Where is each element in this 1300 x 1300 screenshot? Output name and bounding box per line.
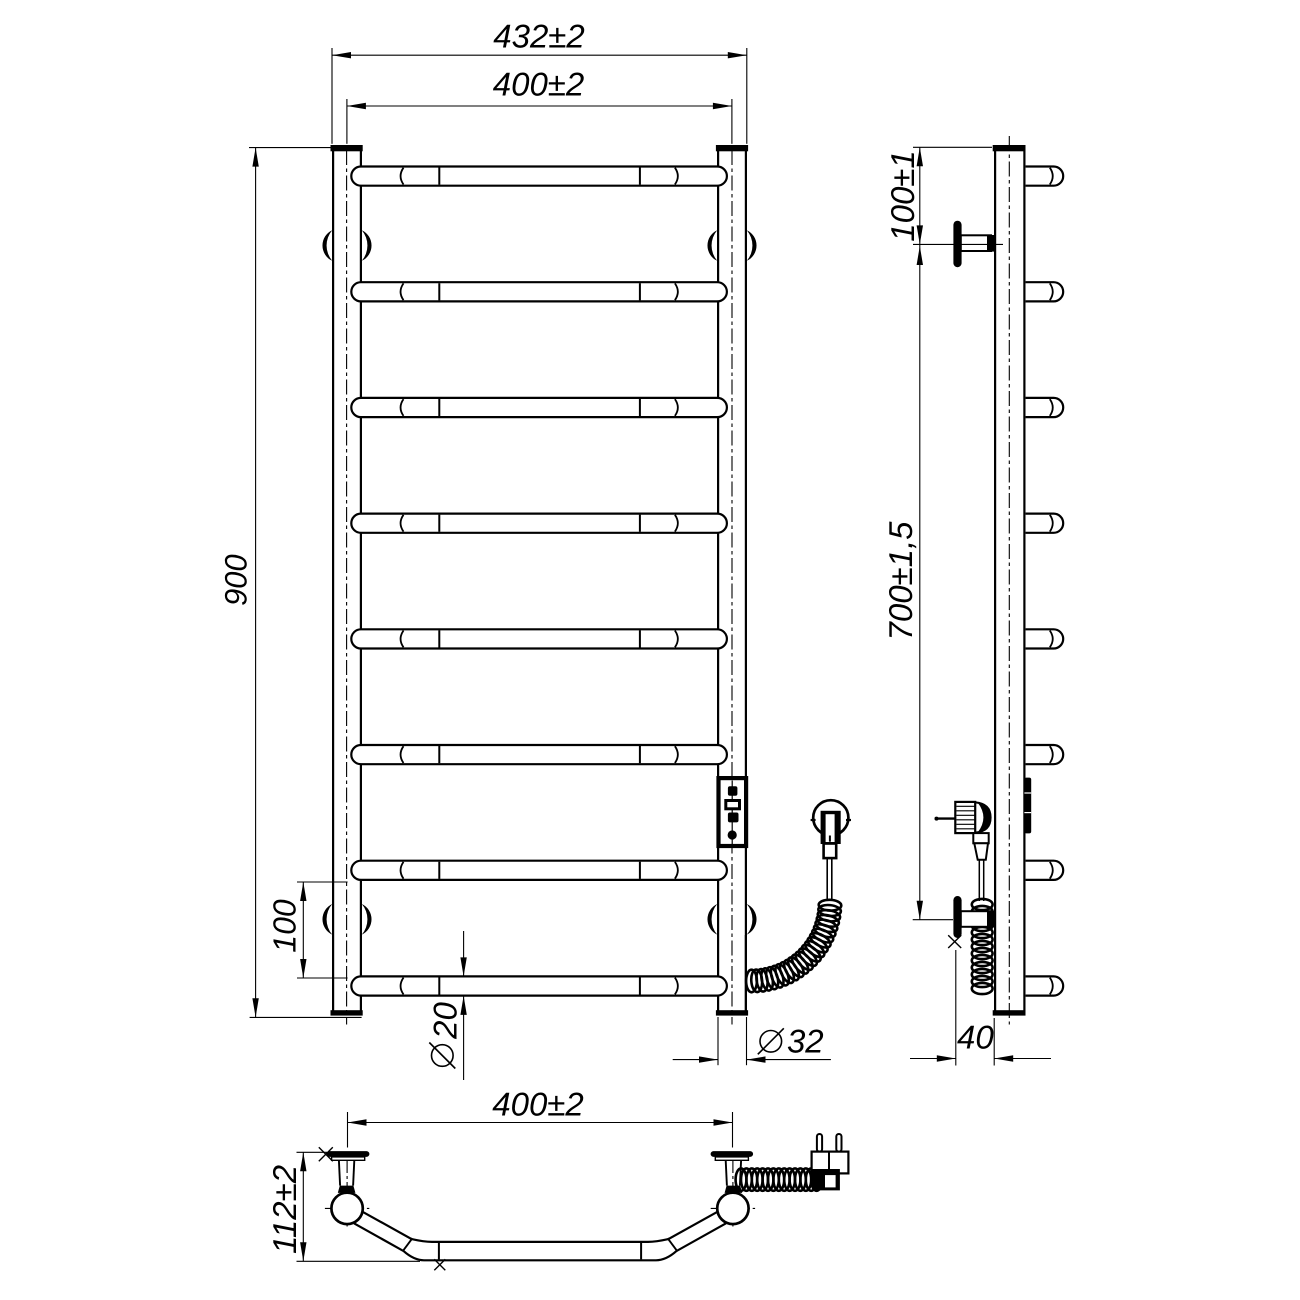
svg-text:112±2: 112±2: [266, 1165, 303, 1254]
svg-text:900: 900: [219, 554, 254, 606]
svg-text:432±2: 432±2: [493, 18, 585, 55]
svg-text:700±1,5: 700±1,5: [882, 521, 919, 641]
svg-text:400±2: 400±2: [492, 1085, 584, 1122]
svg-text:20: 20: [426, 1002, 463, 1040]
svg-text:400±2: 400±2: [493, 66, 585, 103]
svg-text:100±1: 100±1: [884, 150, 921, 242]
svg-text:32: 32: [787, 1022, 824, 1059]
svg-text:40: 40: [957, 1018, 994, 1055]
svg-text:100: 100: [267, 899, 303, 953]
